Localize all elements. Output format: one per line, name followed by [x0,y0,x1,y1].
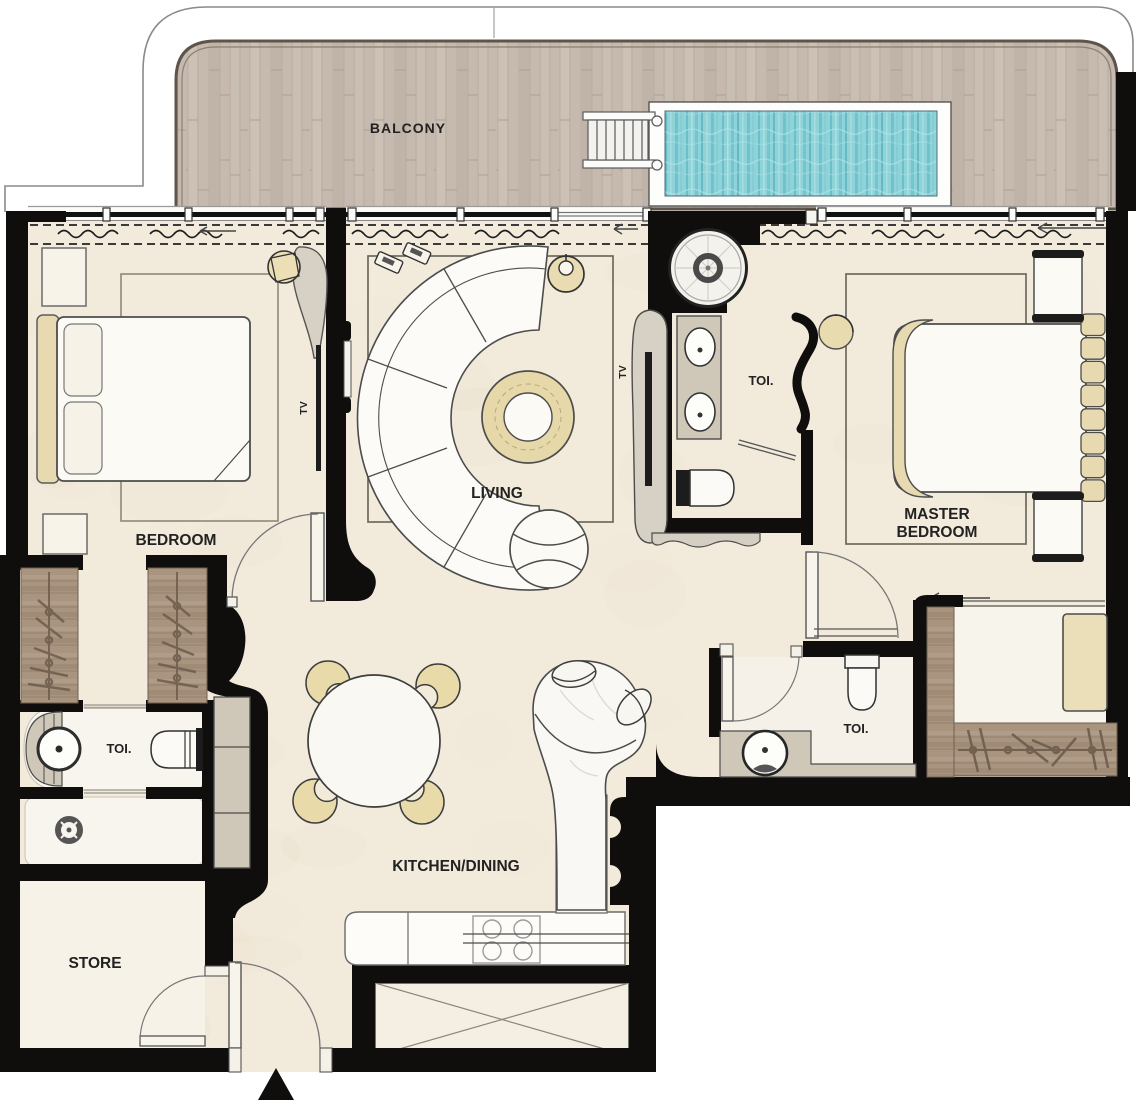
svg-text:BEDROOM: BEDROOM [136,532,217,549]
svg-text:LIVING: LIVING [471,485,523,502]
svg-text:TV: TV [617,365,629,378]
svg-text:TOI.: TOI. [748,373,773,388]
svg-text:KITCHEN/DINING: KITCHEN/DINING [392,858,519,875]
svg-text:TOI.: TOI. [106,741,131,756]
svg-text:STORE: STORE [68,955,121,972]
svg-text:BALCONY: BALCONY [370,120,446,136]
svg-text:BEDROOM: BEDROOM [897,524,978,541]
svg-text:TOI.: TOI. [843,721,868,736]
svg-text:MASTER: MASTER [904,506,969,523]
svg-text:TV: TV [298,401,310,414]
